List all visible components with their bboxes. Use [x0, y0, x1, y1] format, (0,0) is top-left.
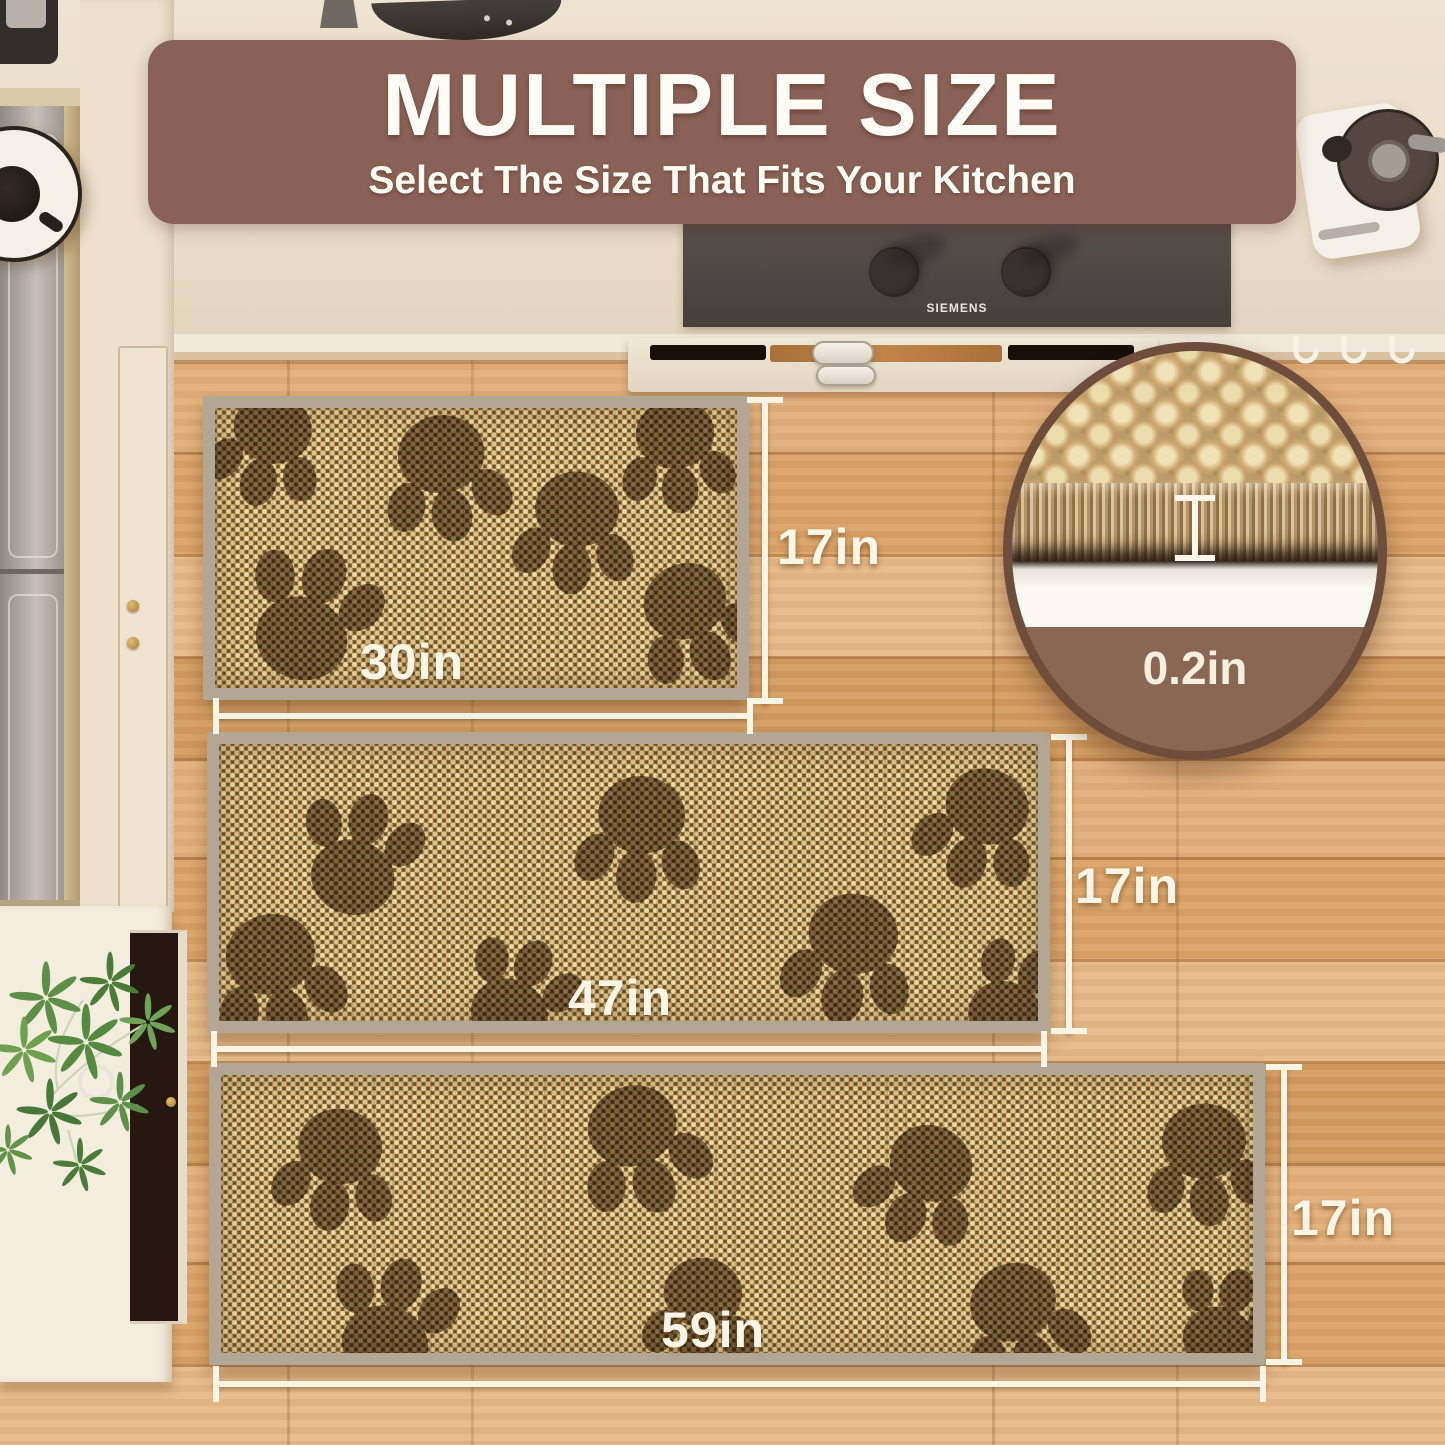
- mat1-height-label: 17in: [777, 518, 881, 576]
- mat3-width-label: 59in: [661, 1301, 765, 1359]
- cooktop-knob-icon: [871, 249, 917, 295]
- door-knob-icon: [127, 637, 139, 649]
- kettle-lid-handle: [1368, 140, 1410, 182]
- paw-print-icon: [555, 755, 723, 923]
- mat-weave-surface: [215, 408, 737, 688]
- mat1-width-label: 30in: [360, 633, 464, 691]
- height-dimension-line: [1066, 734, 1072, 1034]
- cooktop-brand-label: SIEMENS: [683, 301, 1231, 315]
- houseplant-icon: [0, 930, 203, 1210]
- paw-print-icon: [601, 408, 737, 532]
- height-dimension-line: [1281, 1064, 1287, 1365]
- mat2-width-label: 47in: [568, 969, 672, 1027]
- thickness-measure-icon: [1192, 495, 1198, 561]
- paw-print-icon: [922, 902, 1038, 1021]
- width-dimension-line: [213, 1381, 1266, 1387]
- pantry-door: [118, 346, 168, 908]
- mat-backing: [1012, 561, 1378, 627]
- thickness-detail-inset: 0.2in: [1003, 342, 1387, 760]
- cabinet-vent-slot: [650, 345, 766, 360]
- width-dimension-line: [213, 713, 753, 719]
- mat3-height-label: 17in: [1291, 1189, 1395, 1247]
- paw-print-icon: [538, 1075, 743, 1253]
- drawer-handle-icon: [816, 365, 876, 386]
- mat-weave-closeup: [1012, 351, 1378, 483]
- kitchen-mat-size-infographic: SIEMENS: [0, 0, 1445, 1445]
- inset-caption-area: 0.2in: [1012, 627, 1378, 751]
- cup-icon: [320, 0, 358, 28]
- leaves: [0, 952, 176, 1192]
- cabinet-wood-strip: [770, 345, 1002, 362]
- width-dimension-line: [211, 1046, 1047, 1052]
- door-knob-icon: [127, 600, 139, 612]
- height-dimension-line: [762, 397, 768, 704]
- thickness-label: 0.2in: [1143, 641, 1248, 751]
- paw-print-icon: [1125, 1084, 1253, 1247]
- coffee-machine-tray: [6, 0, 46, 28]
- drawer-handle-icon: [812, 341, 874, 365]
- paw-print-icon: [756, 866, 941, 1021]
- mat2-height-label: 17in: [1075, 857, 1179, 915]
- pot-lid: [0, 166, 40, 222]
- banner-title: MULTIPLE SIZE: [382, 61, 1061, 149]
- banner-subtitle: Select The Size That Fits Your Kitchen: [368, 159, 1075, 203]
- paw-print-icon: [1143, 1237, 1253, 1353]
- headline-banner: MULTIPLE SIZE Select The Size That Fits …: [148, 40, 1296, 224]
- pot-handle: [37, 210, 65, 235]
- mat-30x17: [203, 396, 749, 700]
- appliance-divider: [0, 569, 66, 574]
- cooktop-knob-icon: [1003, 249, 1049, 295]
- appliance-top-trim: [0, 88, 84, 106]
